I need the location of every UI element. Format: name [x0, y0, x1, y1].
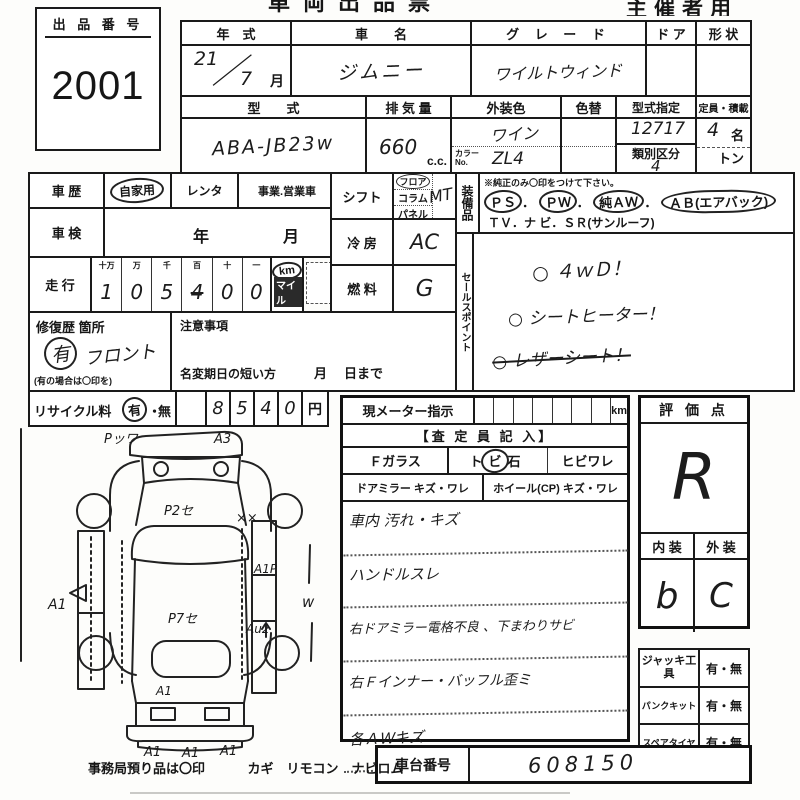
cooling-value: AC	[392, 218, 457, 266]
hood-left	[136, 483, 144, 525]
deposit-items: カギ リモコン ナビロム	[247, 761, 403, 776]
sales-item-leather-struck: ○ レザーシート！	[491, 340, 631, 372]
exterior-label: 外 装	[695, 534, 747, 558]
shift-opt-column: コラム	[394, 190, 432, 206]
disp-unit: c.c.	[427, 154, 447, 168]
extcolor-header: 外装色	[450, 95, 562, 119]
shift-opt-floor-circled: フロア	[396, 174, 429, 189]
sheet-title: 車両出品票	[268, 0, 568, 13]
mileage-headers: 十万 万 千 百 十 一	[92, 258, 270, 272]
damage-label-topleft: Pッワ	[104, 432, 139, 447]
stone-chip-label: トビ石	[449, 448, 548, 473]
capacity-header: 定員・積載	[695, 95, 752, 119]
extcolor-value: ワイン	[489, 119, 539, 146]
equipment-box: ※純正のみ〇印をつけて下さい。 ＰＳ． ＰＷ． 純ＡＷ． ＡＢ(エアバック) Ｔ…	[478, 172, 795, 234]
note-line: 右ドアミラー電格不良 、下まわりサビ	[343, 604, 628, 663]
extcolor-cell: ワイン カラーNo. ZL4	[450, 117, 562, 174]
recycle-label: リサイクル料	[34, 401, 111, 420]
history-label: 車 歴	[28, 172, 105, 209]
history-private-cell: 自家用	[103, 172, 172, 209]
equipment-label-cell: 装備品	[455, 172, 480, 234]
repair-note: (有の場合は〇印を)	[34, 374, 112, 387]
year-header: 年 式	[180, 20, 292, 46]
wheel-front-left	[77, 494, 111, 528]
exterior-grade: C	[695, 560, 747, 632]
disp-value: 660	[379, 135, 417, 159]
color-divider	[452, 146, 560, 147]
tools-box: ジャッキ工具 有・無 パンクキット 有・無 スペアタイヤ 有・無	[638, 648, 750, 757]
name-header: 車 名	[290, 20, 472, 46]
damage-label-w: w	[302, 593, 315, 611]
typedesig-value: 12717	[631, 119, 685, 139]
damage-label-rear1: A1	[143, 745, 161, 757]
shaken-year: 年	[193, 223, 209, 247]
equipment-ps-circled: ＰＳ	[483, 189, 522, 214]
damage-label-rear2: A1	[181, 746, 199, 757]
damage-label-tailgate: A1	[155, 684, 172, 698]
grade-value: ワイルトウィンド	[494, 56, 623, 84]
recycle-digit-1: 8	[205, 390, 231, 427]
rear-panel	[136, 703, 244, 726]
evaluation-score: R	[641, 424, 747, 532]
meter-unit: km	[611, 398, 627, 423]
damage-label-hood: P2セ	[164, 504, 194, 519]
history-business-cell: 事業.営業車	[237, 172, 337, 209]
fuel-value: G	[392, 264, 457, 313]
evaluation-label: 評 価 点	[641, 398, 747, 424]
typedesig-cell: 12717 類別区分 4	[615, 117, 697, 174]
shift-cell: フロア コラム パネル MT	[392, 172, 457, 220]
shift-options: フロア コラム パネル	[394, 174, 433, 218]
damage-label-a1p: A1P	[253, 562, 278, 576]
recycle-digit-4: 0	[277, 390, 303, 427]
right-mark-upper	[309, 545, 310, 583]
colorchg-cell	[560, 117, 617, 174]
fuel-label: 燃 料	[330, 264, 394, 313]
damage-label-xx: ××	[236, 511, 258, 526]
equipment-airbag-circled: ＡＢ(エアバック)	[661, 189, 777, 214]
grade-cell: ワイルトウィンド	[470, 44, 647, 97]
damage-label-left-a1: A1	[47, 597, 66, 613]
puncture-kit-option: 有・無	[700, 688, 748, 723]
taillight-left	[151, 708, 175, 720]
note-line: ハンドルスレ	[343, 552, 628, 609]
sheet-title-clipped: 車両出品票	[268, 0, 568, 13]
recycle-digit-2: 5	[229, 390, 255, 427]
cabin-left	[132, 559, 135, 681]
history-private-circled: 自家用	[110, 176, 166, 205]
shaken-month: 月	[283, 223, 299, 247]
interior-grade: b	[641, 560, 695, 632]
scan-artifact-line	[130, 792, 570, 794]
door-cell	[645, 44, 697, 97]
transfer-month: 月	[314, 363, 327, 382]
footer-note-row: 事務局預り品は〇印 カギ リモコン ナビロム	[88, 758, 568, 778]
capacity-unit: 名	[731, 125, 744, 144]
cooling-label: 冷 房	[330, 218, 394, 266]
headlight-left	[154, 462, 168, 476]
car-damage-diagram: Pッワ A3 P2セ ×× P7セ A1P A1 Au2 w A1 A1 A1 …	[18, 425, 338, 757]
evaluation-box: 評 価 点 R 内 装 外 装 b C	[638, 395, 750, 629]
transfer-day: 日まで	[344, 363, 383, 382]
interior-label: 内 装	[641, 534, 695, 558]
rear-bumper	[127, 726, 253, 741]
shift-value: MT	[428, 184, 455, 207]
puncture-kit-label: パンクキット	[640, 688, 700, 723]
transfer-deadline-label: 名変期日の短い方	[180, 365, 276, 382]
damage-label-roof: P7セ	[168, 612, 198, 627]
shape-header: 形 状	[695, 20, 752, 46]
shape-cell	[695, 44, 752, 97]
lot-box: 出 品 番 号 2001	[35, 7, 161, 151]
load-unit: トン	[718, 148, 744, 167]
lot-number: 2001	[37, 64, 159, 109]
equipment-line2: ＴＶ．ナ ビ．ＳＲ(サンルーフ)	[488, 214, 793, 231]
model-header: 型 式	[180, 95, 367, 119]
mileage-digits: 1 0 5 4 0 0	[92, 272, 270, 311]
year-cell: 21 ／ 7 月	[180, 44, 292, 97]
recycle-blank-cell	[175, 390, 207, 427]
recycle-no: 無	[158, 401, 171, 420]
mile-unit: マイル	[274, 277, 302, 307]
recycle-yes-circled: 有	[120, 395, 148, 423]
windshield	[132, 526, 248, 564]
sales-label: セールスポイント	[457, 272, 472, 352]
front-fender-left	[110, 461, 139, 531]
caution-box: 注意事項 名変期日の短い方 月 日まで	[170, 311, 458, 392]
typedesig-header: 型式指定	[615, 95, 697, 119]
colorno-value: ZL4	[492, 149, 524, 169]
colorchg-header: 色替	[560, 95, 617, 119]
equipment-note: ※純正のみ〇印をつけて下さい。	[484, 176, 793, 189]
organizer-clipped: 主催者用	[626, 0, 798, 16]
shift-label: シフト	[330, 172, 394, 220]
note-line: 右Ｆインナー・バッフル歪ミ	[343, 658, 628, 717]
office-deposit-note: 事務局預り品は〇印	[88, 761, 205, 776]
sales-box: ○ ４ｗＤ！ ○ シートヒーター！ ○ レザーシート！	[472, 232, 795, 392]
door-mirror-label: ドアミラー キズ・ワレ	[343, 475, 484, 500]
history-rental-cell: レンタ	[170, 172, 239, 209]
meter-row: 現メーター指示 km	[343, 398, 627, 425]
name-cell: ジムニー	[290, 44, 472, 97]
model-cell: ABA-JB23w	[180, 117, 367, 174]
right-mark-lower	[311, 623, 312, 661]
year-month-unit: 月	[270, 71, 284, 91]
damage-label-topright: A3	[213, 432, 231, 447]
capacity-cell: 4 名 トン	[695, 117, 752, 174]
damage-label-au2: Au2	[245, 622, 269, 636]
recycle-digit-3: 4	[253, 390, 279, 427]
cabin-right	[245, 559, 248, 681]
capacity-value: 4	[707, 119, 719, 141]
note-line: 車内 汚れ・キズ	[343, 500, 628, 557]
door-header: ド ア	[645, 20, 697, 46]
equipment-aw-circled: 純ＡＷ	[593, 189, 645, 214]
wheel-rear-left	[79, 636, 113, 670]
jack-tools-option: 有・無	[700, 650, 748, 686]
grade-header: グ レ ー ド	[470, 20, 647, 46]
name-value: ジムニー	[337, 55, 426, 85]
wheel-label: ホイール(CP) キズ・ワレ	[484, 475, 627, 500]
repair-label: 修復歴 箇所	[36, 317, 164, 336]
wheel-front-right	[268, 494, 302, 528]
mileage-unit-cell: km マイル	[270, 256, 304, 313]
mileage-label: 走 行	[28, 256, 92, 313]
headlight-right	[214, 462, 228, 476]
front-panel	[142, 457, 240, 483]
auction-sheet: 車両出品票 主催者用 出 品 番 号 2001 年 式 車 名 グ レ ー ド …	[0, 0, 800, 800]
front-glass-label: Ｆガラス	[343, 448, 449, 473]
disp-header: 排 気 量	[365, 95, 452, 119]
mirror-row: ドアミラー キズ・ワレ ホイール(CP) キズ・ワレ	[343, 475, 627, 502]
damage-label-rear3: A1	[219, 744, 237, 757]
equipment-line1: ＰＳ． ＰＷ． 純ＡＷ． ＡＢ(エアバック)	[484, 190, 793, 213]
lot-label: 出 品 番 号	[45, 14, 151, 38]
assessor-notes: 車内 汚れ・キズ ハンドルスレ 右ドアミラー電格不良 、下まわりサビ 右Ｆインナ…	[343, 502, 627, 768]
jack-tools-label: ジャッキ工具	[640, 650, 700, 686]
mileage-grid: 十万 万 千 百 十 一 1 0 5 4 0 0	[90, 256, 272, 313]
crack-label: ヒビワレ	[548, 448, 627, 473]
repair-mark-circled: 有	[42, 335, 79, 372]
shaken-cell: 年 月	[103, 207, 337, 258]
recycle-unit: 円	[301, 390, 329, 427]
recycle-label-cell: リサイクル料 有 ・ 無	[28, 390, 177, 427]
taillight-right	[205, 708, 229, 720]
shaken-label: 車 検	[28, 207, 105, 258]
equipment-pw-circled: ＰＷ	[538, 189, 577, 213]
colorno-label: カラーNo.	[455, 150, 479, 168]
year-value-bottom: 7	[240, 68, 252, 90]
meter-label: 現メーター指示	[343, 398, 475, 423]
sales-item-seatheater: ○ シートヒーター！	[508, 299, 665, 329]
organizer-label: 主催者用	[626, 0, 798, 16]
repair-value: フロント	[83, 337, 157, 370]
mileage-spare-box	[306, 262, 332, 304]
assessor-header: 【査 定 員 記 入】	[343, 425, 627, 448]
repair-box: 修復歴 箇所 有 フロント (有の場合は〇印を)	[28, 311, 172, 392]
glass-row: Ｆガラス トビ石 ヒビワレ	[343, 448, 627, 475]
sales-item-4wd: ○ ４ｗＤ！	[531, 253, 631, 285]
rear-window	[152, 641, 230, 677]
meter-box: 現メーター指示 km 【査 定 員 記 入】 Ｆガラス トビ石 ヒビワレ ドアミ…	[340, 395, 630, 742]
equipment-label: 装備品	[459, 185, 476, 221]
caution-label: 注意事項	[180, 317, 448, 334]
disp-cell: 660 c.c.	[365, 117, 452, 174]
model-value: ABA-JB23w	[212, 131, 335, 159]
